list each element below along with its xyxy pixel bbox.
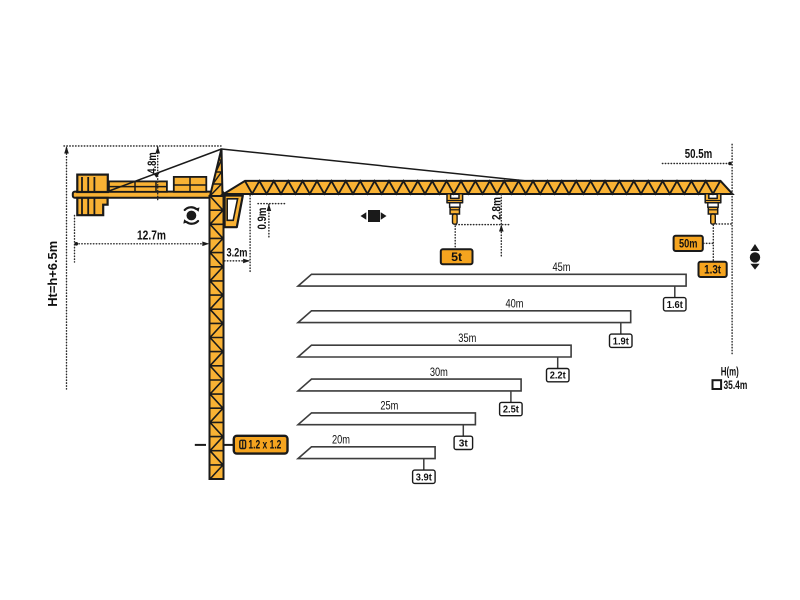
svg-text:35m: 35m — [458, 333, 476, 345]
svg-text:4.8m: 4.8m — [145, 152, 159, 174]
svg-text:3.9t: 3.9t — [416, 471, 432, 483]
svg-text:1.3t: 1.3t — [704, 263, 721, 277]
svg-text:1.6t: 1.6t — [667, 299, 683, 311]
svg-text:35.4m: 35.4m — [724, 380, 748, 392]
svg-text:2.5t: 2.5t — [503, 404, 519, 416]
svg-text:1.2 x 1.2: 1.2 x 1.2 — [248, 437, 281, 451]
svg-text:2.8m: 2.8m — [490, 197, 504, 220]
svg-text:25m: 25m — [380, 401, 398, 413]
svg-text:2.2t: 2.2t — [550, 370, 566, 382]
svg-text:20m: 20m — [332, 435, 350, 447]
svg-text:3t: 3t — [459, 437, 468, 449]
svg-text:5t: 5t — [451, 250, 462, 264]
svg-text:30m: 30m — [430, 367, 448, 379]
svg-text:12.7m: 12.7m — [137, 228, 166, 243]
svg-text:50m: 50m — [679, 237, 698, 251]
svg-text:50.5m: 50.5m — [685, 146, 713, 161]
svg-text:40m: 40m — [506, 299, 524, 311]
svg-text:3.2m: 3.2m — [227, 245, 248, 259]
svg-text:1.9t: 1.9t — [613, 335, 629, 347]
svg-text:0.9m: 0.9m — [255, 208, 269, 230]
svg-text:H(m): H(m) — [721, 367, 739, 379]
svg-text:45m: 45m — [553, 262, 571, 274]
svg-text:Ht=h+6.5m: Ht=h+6.5m — [45, 241, 60, 307]
